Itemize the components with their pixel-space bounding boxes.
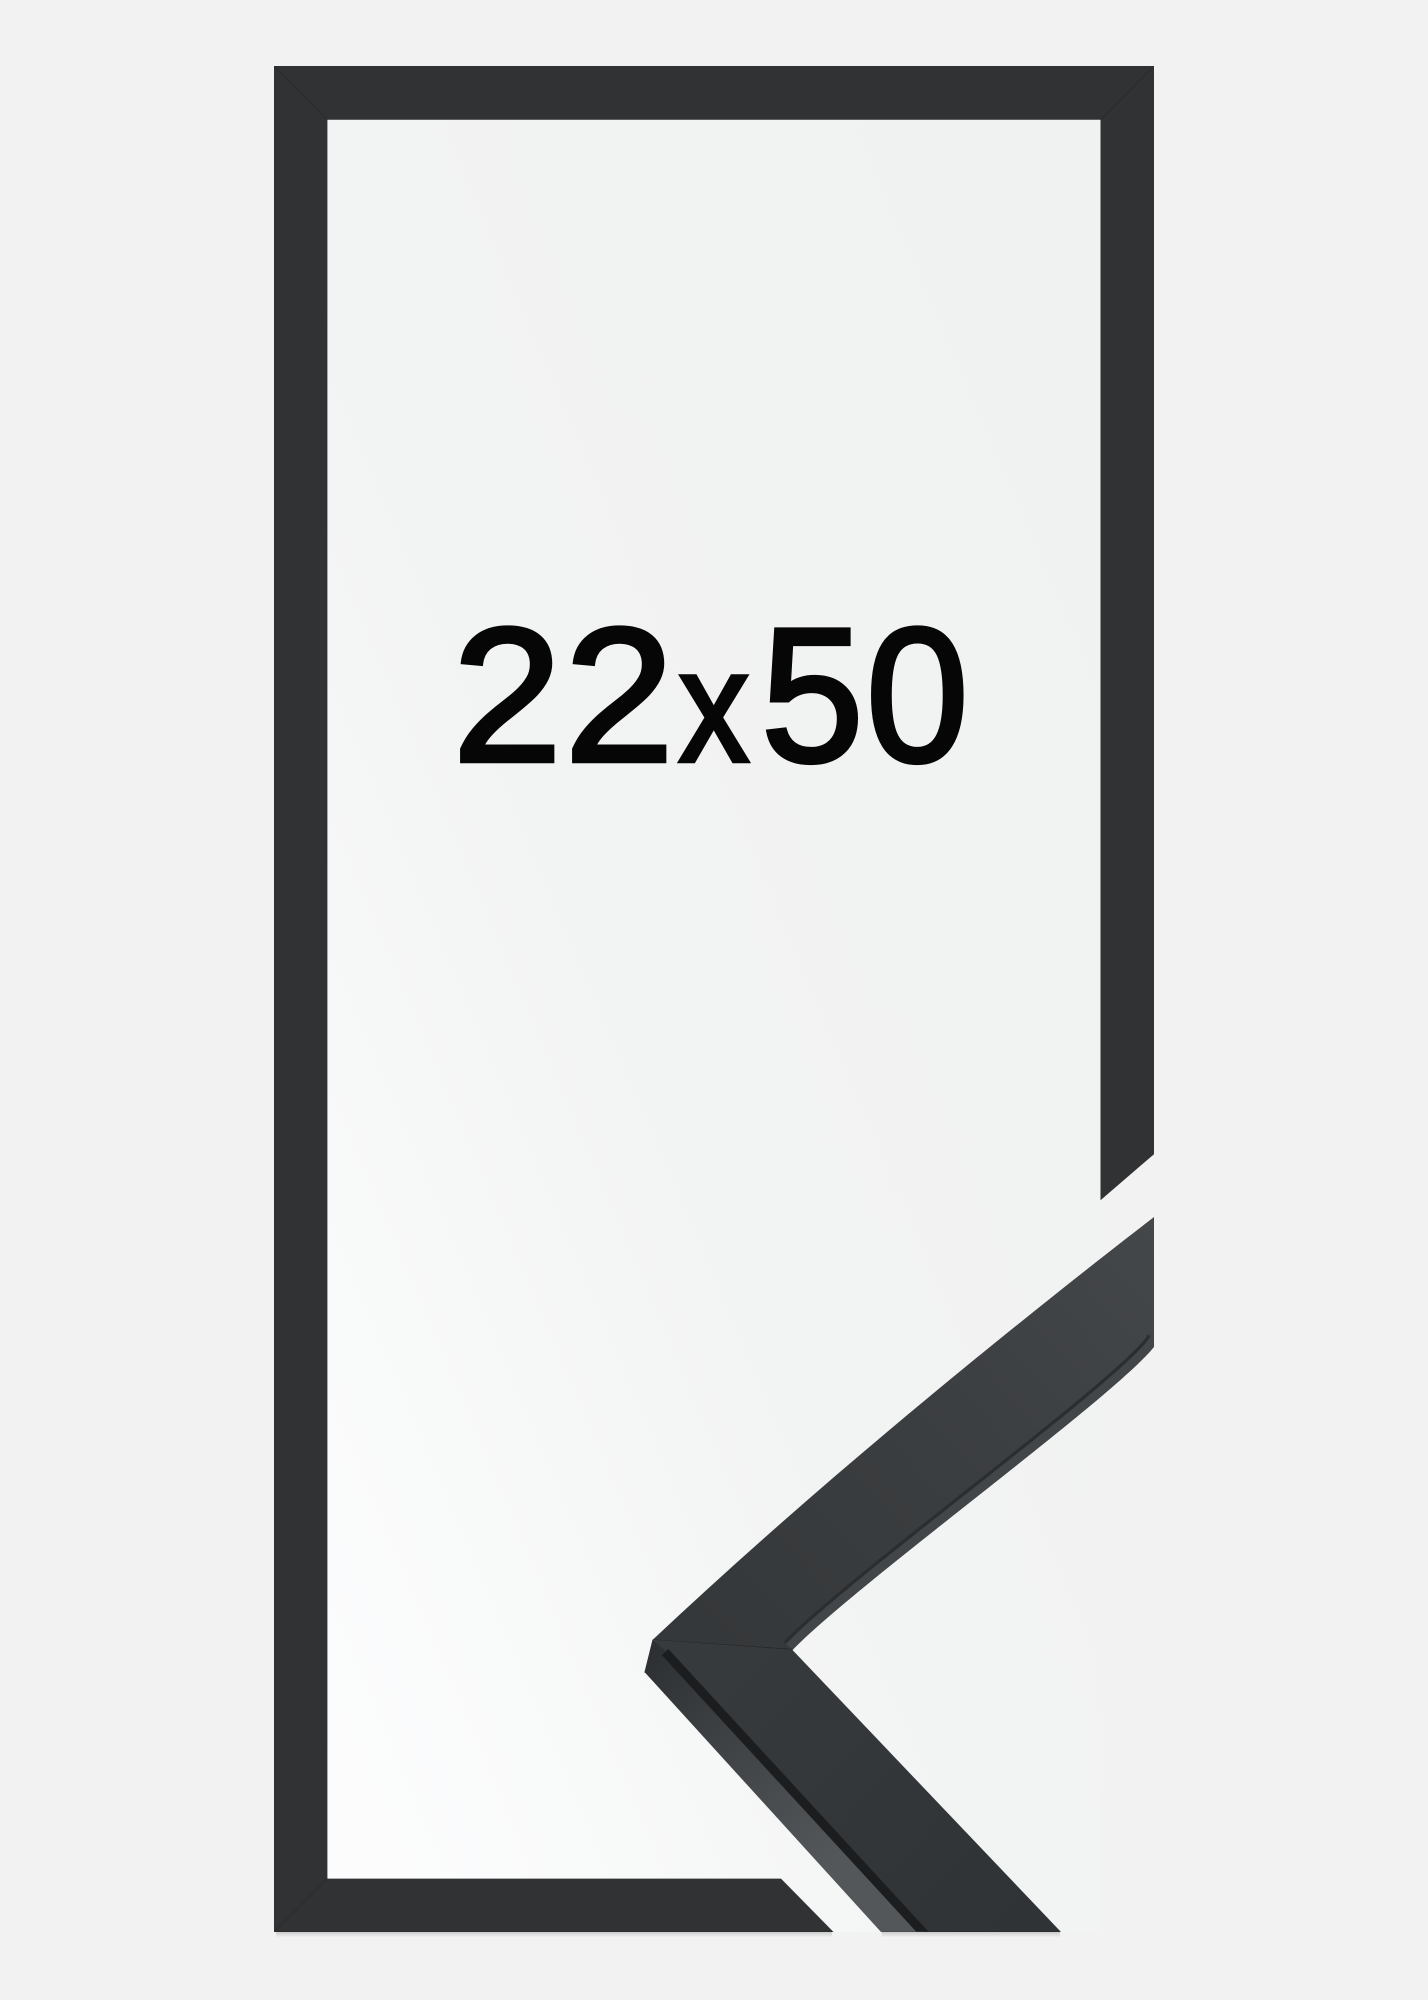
svg-text:22x50: 22x50: [453, 589, 972, 802]
